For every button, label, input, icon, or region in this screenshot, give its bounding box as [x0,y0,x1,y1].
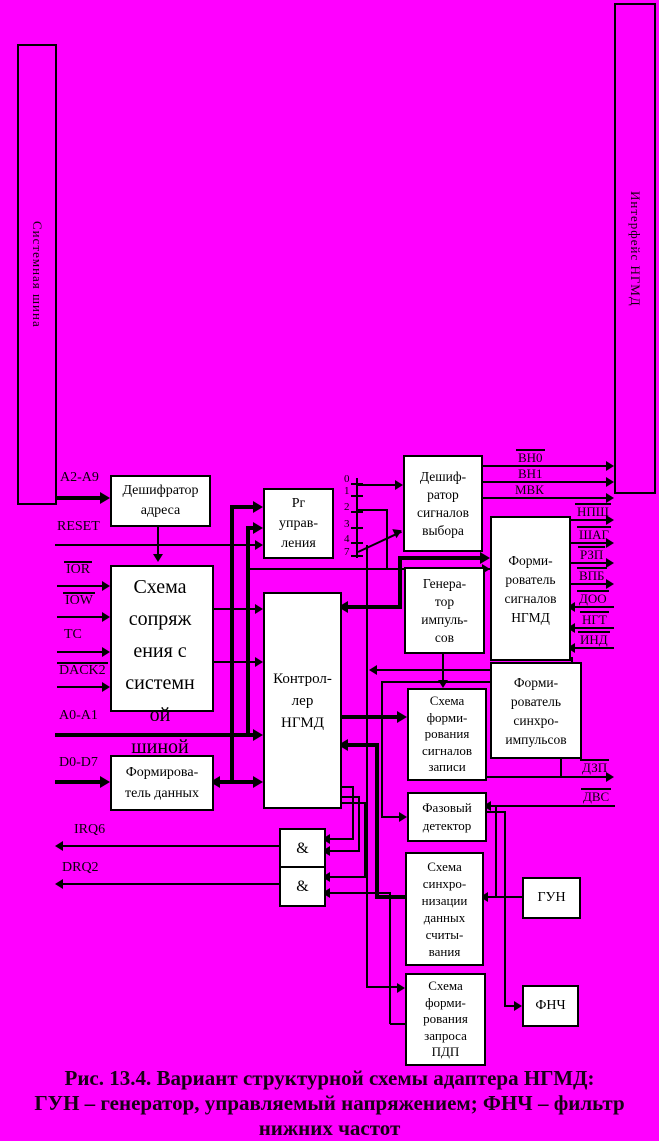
block-control-register-label: Рг управ- ления [279,494,318,554]
fdd-interface-bus-label: Интерфейс НГМД [627,191,643,307]
wire [57,651,103,653]
arrowhead [253,729,263,741]
wire [62,883,279,885]
and-gate-irq-label: & [296,840,308,858]
wire [483,776,610,778]
wire [328,850,360,852]
arrowhead [153,554,163,562]
wire [351,542,363,544]
signal-label-dvs: ДВС [581,788,611,804]
wire [57,616,103,618]
arrowhead [606,558,614,568]
signal-label-irq6: IRQ6 [74,823,105,838]
fdd-interface-bus: Интерфейс НГМД [614,3,656,494]
wire [366,545,368,988]
wire [55,496,103,500]
register-bit-3: 3 [344,518,350,530]
block-phase-detector: Фазовый детектор [407,792,487,842]
wire [351,511,363,513]
block-sync-pulse-former-label: Форми- рователь синхро- импульсов [505,673,566,749]
arrowhead [606,477,614,487]
arrowhead [100,492,110,504]
block-write-signal-former: Схема форми- рования сигналов записи [407,688,487,781]
and-gate-drq-label: & [296,878,308,896]
block-address-decoder-label: Дешифратор адреса [122,481,198,521]
block-vco-label: ГУН [537,890,565,906]
arrowhead [395,480,403,490]
wire [364,802,366,878]
signal-label-a2-a9: А2-А9 [60,471,99,486]
wire [57,585,103,587]
register-bit-1: 1 [344,485,350,497]
wire [216,780,256,784]
wire [246,526,253,530]
block-fdd-signal-former-label: Форми- рователь сигналов НГМД [505,551,557,627]
signal-label-rzp: РЗП [578,546,605,562]
block-lpf: ФНЧ [522,985,579,1027]
block-address-decoder: Дешифратор адреса [110,475,211,527]
wire [567,542,607,544]
block-bus-interface-label: Схема сопряж ения с системн ой шиной [110,571,210,763]
wire [375,743,379,899]
arrowhead [102,682,110,692]
block-read-data-sync-label: Схема синхро- низации данных считы- вани… [422,858,468,960]
wire [372,669,490,671]
wire [390,1023,405,1025]
arrowhead [397,711,407,723]
wire [328,876,366,878]
caption-line-1: Рис. 13.4. Вариант структурной схемы ада… [0,1066,659,1091]
wire [62,845,279,847]
wire [328,838,354,840]
signal-label-ior: IOR [64,561,92,578]
block-control-register: Рг управ- ления [263,488,334,559]
wire [567,562,607,564]
register-bit-0: 0 [344,473,350,485]
wire [504,811,506,1007]
wire [479,497,607,499]
signal-label-ngt: НГТ [580,611,609,627]
arrowhead [369,665,377,675]
wire [246,526,250,735]
wire [230,505,253,509]
signal-label-npsh: НПШ [575,503,611,519]
arrowhead [399,812,407,822]
caption-line-2: ГУН – генератор, управляемый напряжением… [0,1091,659,1141]
block-fdc-controller-label: Контрол- лер НГМД [273,668,332,734]
arrowhead [100,776,110,788]
arrowhead [253,522,263,534]
block-data-former-label: Формирова- тель данных [125,762,199,804]
signal-label-shag: ШАГ [577,526,611,542]
wire [210,661,256,663]
block-select-decoder: Дешиф- ратор сигналов выбора [403,455,483,552]
wire [351,527,363,529]
wire [495,805,497,897]
signal-label-vn1: ВН1 [516,465,545,481]
signal-label-a0-a1: А0-А1 [59,709,98,724]
register-bit-2: 2 [344,501,350,513]
block-sync-pulse-former: Форми- рователь синхро- импульсов [490,662,582,759]
wire [57,686,103,688]
wire [398,556,483,560]
and-gate-irq: & [279,828,326,870]
system-bus: Системная шина [17,44,57,505]
arrowhead [255,540,263,550]
signal-label-dack2: DACK2 [57,662,108,679]
wire [567,583,607,585]
wire [381,816,399,818]
wire [357,484,396,486]
wire [157,523,159,557]
block-phase-detector-label: Фазовый детектор [422,799,471,835]
signal-label-d0-d7: D0-D7 [59,756,98,771]
signal-label-drq2: DRQ2 [62,861,99,876]
block-select-decoder-label: Дешиф- ратор сигналов выбора [417,468,469,540]
and-gate-drq: & [279,866,326,907]
block-data-former: Формирова- тель данных [110,755,214,811]
wire [573,647,614,649]
wire [573,627,614,629]
wire [338,715,397,719]
arrowhead [253,501,263,513]
signal-label-vpb: ВПБ [577,567,607,583]
arrowhead [606,579,614,589]
arrowhead [255,657,263,667]
block-vco: ГУН [522,877,581,919]
block-fdc-controller: Контрол- лер НГМД [263,592,342,809]
register-bit-7: 7 [344,546,350,558]
wire [389,892,391,1024]
wire [55,780,103,784]
wire [351,555,363,557]
arrowhead [606,461,614,471]
wire [352,786,354,840]
wire [338,802,366,804]
wire [489,805,615,807]
signal-label-tc: ТС [64,628,82,643]
block-dma-request-former-label: Схема форми- рования запроса ПДП [423,978,468,1061]
arrowhead [480,552,490,564]
wire [230,505,234,782]
arrowhead [55,841,63,851]
wire [357,509,387,511]
arrowhead [102,581,110,591]
block-write-signal-former-label: Схема форми- рования сигналов записи [422,693,472,776]
signal-label-doo: ДОО [577,590,609,606]
wire [210,608,256,610]
signal-label-reset: RESET [57,520,100,535]
wire [356,478,358,558]
wire [348,743,378,747]
wire [328,892,390,894]
arrowhead [55,879,63,889]
arrowhead [397,983,405,993]
wire [398,556,402,609]
signal-label-vn0: ВН0 [516,449,545,465]
block-pulse-generator-label: Генера- тор импуль- сов [421,575,468,647]
block-fdd-signal-former: Форми- рователь сигналов НГМД [490,516,571,661]
register-bit-4: 4 [344,533,350,545]
block-lpf-label: ФНЧ [535,998,565,1014]
wire [567,519,607,521]
figure-caption: Рис. 13.4. Вариант структурной схемы ада… [0,1066,659,1141]
block-read-data-sync: Схема синхро- низации данных считы- вани… [405,852,484,966]
signal-label-dzp: ДЗП [580,759,609,775]
block-pulse-generator: Генера- тор импуль- сов [404,567,485,654]
arrowhead [255,604,263,614]
wire [382,681,490,683]
wire [366,986,398,988]
signal-label-mvk: МВК [513,481,546,497]
arrowhead [102,612,110,622]
wire [351,495,363,497]
wire [358,796,360,852]
arrowhead [253,776,263,788]
signal-label-ind: ИНД [578,631,610,647]
wire [345,605,400,609]
arrowhead [102,647,110,657]
arrowhead [606,493,614,503]
wire [381,681,383,817]
system-bus-label: Системная шина [29,221,45,328]
arrowhead [514,1001,522,1011]
signal-label-iow: IOW [63,592,95,609]
wire [442,650,444,681]
wire [573,606,614,608]
wire [55,544,256,546]
block-dma-request-former: Схема форми- рования запроса ПДП [405,973,486,1066]
